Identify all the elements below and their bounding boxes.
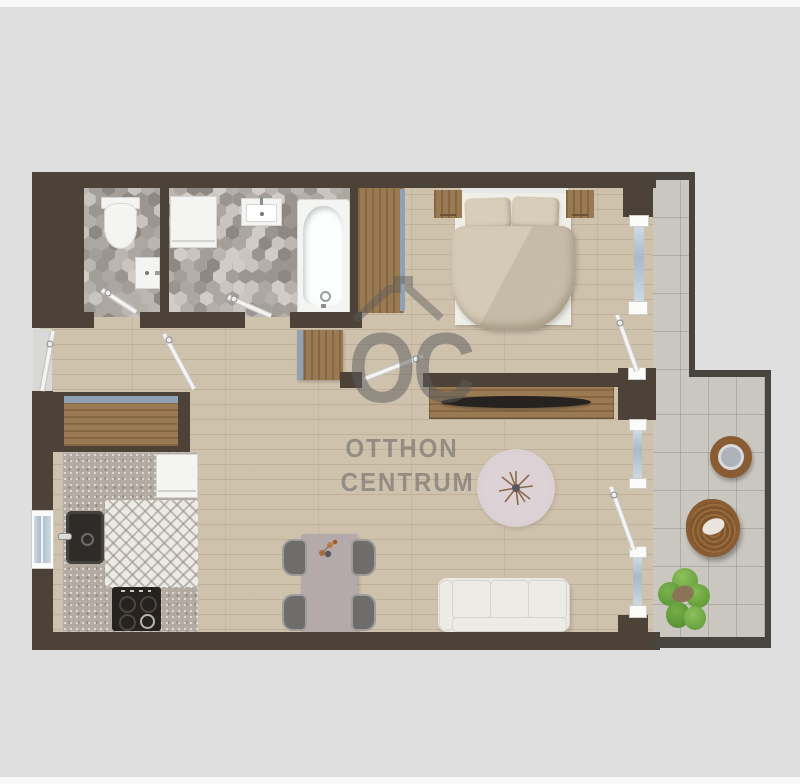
watermark-roof-icon — [352, 276, 444, 322]
floorplan-image: OC OTTHON CENTRUM — [0, 0, 800, 784]
bathroom-door-leaf — [228, 296, 271, 316]
hall-door-leaf — [164, 334, 194, 389]
wc-door-leaf — [102, 290, 136, 312]
entry-door-leaf — [42, 331, 53, 391]
doors-layer — [0, 0, 800, 784]
bedroom-door-leaf — [364, 356, 423, 379]
bedroom-balcony-door-leaf — [617, 315, 637, 371]
living-balcony-door-leaf — [611, 487, 634, 550]
